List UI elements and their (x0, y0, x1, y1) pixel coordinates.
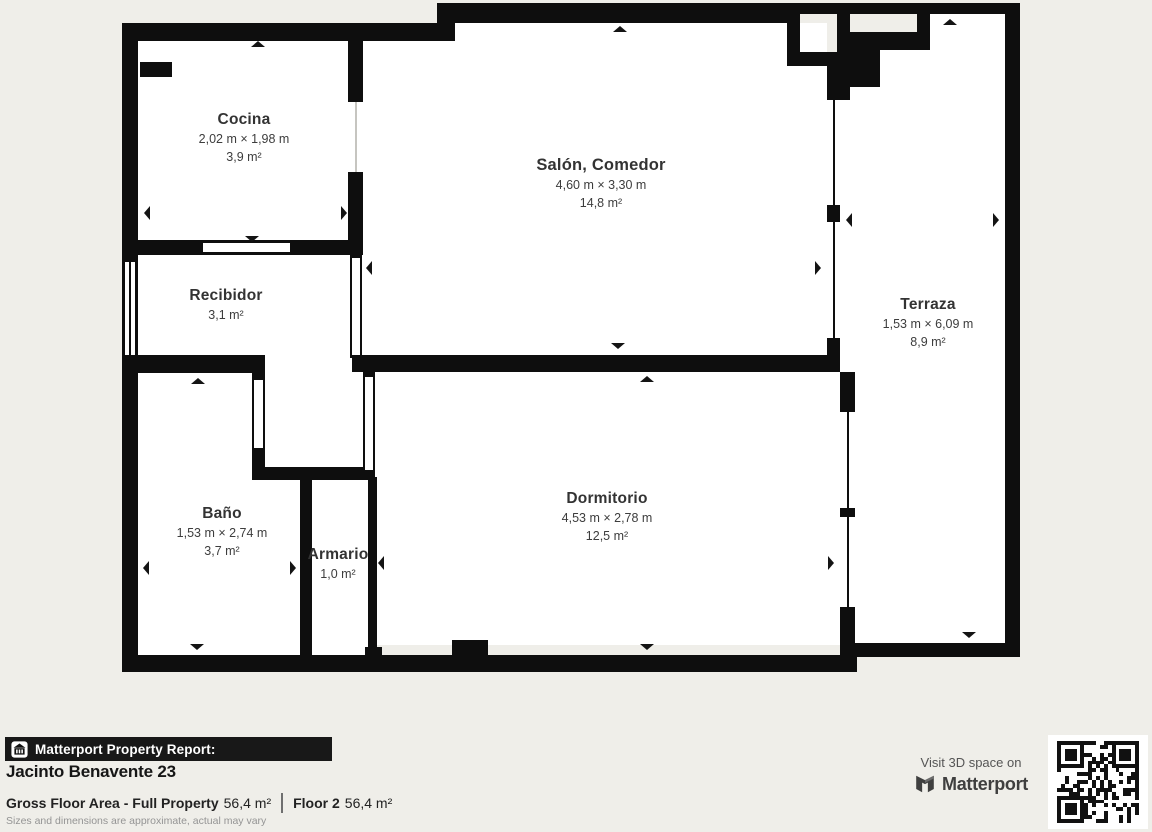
door-opening (252, 380, 265, 448)
room-area: 3,1 m² (126, 307, 326, 325)
measure-arrow (366, 261, 372, 275)
divider (281, 793, 283, 813)
wall-stub (452, 640, 488, 656)
wall (348, 23, 363, 102)
wall (837, 14, 850, 52)
window-opening (827, 222, 840, 338)
wall (800, 3, 1018, 14)
measure-arrow (143, 561, 149, 575)
report-bar-label: Matterport Property Report: (35, 742, 215, 757)
wall (365, 647, 382, 657)
wall (787, 52, 850, 66)
wall (827, 66, 850, 100)
room-label-recibidor: Recibidor 3,1 m² (126, 287, 326, 325)
room-name: Salón, Comedor (451, 156, 751, 175)
measure-arrow (640, 376, 654, 382)
measure-arrow (191, 378, 205, 384)
wall (840, 645, 857, 672)
wall (122, 655, 857, 672)
gross-area-value: 56,4 m² (224, 795, 271, 811)
measure-arrow (815, 261, 821, 275)
room-name: Recibidor (126, 287, 326, 305)
property-title: Jacinto Benavente 23 (6, 762, 176, 782)
door-opening (350, 258, 362, 355)
wall (348, 172, 363, 255)
measure-arrow (846, 213, 852, 227)
hallway-floor (265, 358, 363, 467)
room-area: 3,9 m² (144, 149, 344, 167)
room-area: 1,0 m² (288, 566, 388, 584)
qr-code (1057, 741, 1139, 823)
floor-value: 56,4 m² (345, 795, 392, 811)
wall (437, 3, 800, 23)
room-area: 8,9 m² (848, 334, 1008, 352)
wall-stub (140, 62, 172, 77)
gross-area-label: Gross Floor Area - Full Property (6, 795, 219, 811)
measure-arrow (613, 26, 627, 32)
room-area: 14,8 m² (451, 195, 751, 213)
visit-text: Visit 3D space on (878, 755, 1064, 770)
measure-arrow (144, 206, 150, 220)
room-label-salon: Salón, Comedor 4,60 m × 3,30 m 14,8 m² (451, 156, 751, 212)
room-label-cocina: Cocina 2,02 m × 1,98 m 3,9 m² (144, 111, 344, 166)
floor-label: Floor 2 (293, 795, 340, 811)
wall (843, 643, 1020, 657)
door-opening (363, 377, 375, 470)
door-opening (203, 243, 290, 252)
measure-arrow (993, 213, 999, 227)
room-label-dormitorio: Dormitorio 4,53 m × 2,78 m 12,5 m² (457, 490, 757, 545)
room-area: 12,5 m² (457, 528, 757, 546)
room-terraza-floor-lower (855, 372, 1005, 643)
qr-card (1048, 735, 1148, 829)
measure-arrow (251, 41, 265, 47)
measure-arrow (943, 19, 957, 25)
wall (252, 467, 375, 480)
area-summary: Gross Floor Area - Full Property 56,4 m²… (6, 793, 392, 813)
wall (840, 607, 855, 645)
measure-arrow (245, 236, 259, 242)
room-name: Armario (288, 546, 388, 564)
opening-line (355, 102, 357, 172)
wall (122, 355, 265, 373)
measure-arrow (640, 644, 654, 650)
window-opening (827, 100, 840, 205)
measure-arrow (190, 644, 204, 650)
visit-3d-cta: Visit 3D space on Matterport (878, 755, 1064, 795)
window-opening (840, 412, 855, 508)
wall (840, 372, 855, 412)
room-name: Cocina (144, 111, 344, 129)
floor-plan-report: Cocina 2,02 m × 1,98 m 3,9 m² Salón, Com… (0, 0, 1152, 832)
measure-arrow (962, 632, 976, 638)
wall (437, 20, 455, 41)
wall (840, 508, 855, 517)
measure-arrow (341, 206, 347, 220)
room-dimensions: 4,53 m × 2,78 m (457, 510, 757, 528)
room-name: Baño (122, 505, 322, 523)
building-icon (11, 741, 28, 758)
shaft-void (850, 14, 917, 32)
wall (352, 355, 840, 372)
disclaimer-text: Sizes and dimensions are approximate, ac… (6, 815, 266, 827)
window-opening (840, 517, 855, 607)
room-dimensions: 1,53 m × 6,09 m (848, 316, 1008, 334)
measure-arrow (828, 556, 834, 570)
matterport-logo-icon (914, 773, 936, 795)
wall (122, 23, 437, 41)
wall (850, 32, 930, 50)
room-dimensions: 2,02 m × 1,98 m (144, 131, 344, 149)
room-dimensions: 1,53 m × 2,74 m (122, 525, 322, 543)
report-header-bar: Matterport Property Report: (5, 737, 332, 761)
measure-arrow (611, 343, 625, 349)
room-label-terraza: Terraza 1,53 m × 6,09 m 8,9 m² (848, 296, 1008, 351)
wall (827, 205, 840, 222)
wall (850, 50, 880, 87)
room-name: Terraza (848, 296, 1008, 314)
room-name: Dormitorio (457, 490, 757, 508)
room-dimensions: 4,60 m × 3,30 m (451, 177, 751, 195)
matterport-wordmark: Matterport (942, 774, 1028, 795)
room-label-armario: Armario 1,0 m² (288, 546, 388, 584)
